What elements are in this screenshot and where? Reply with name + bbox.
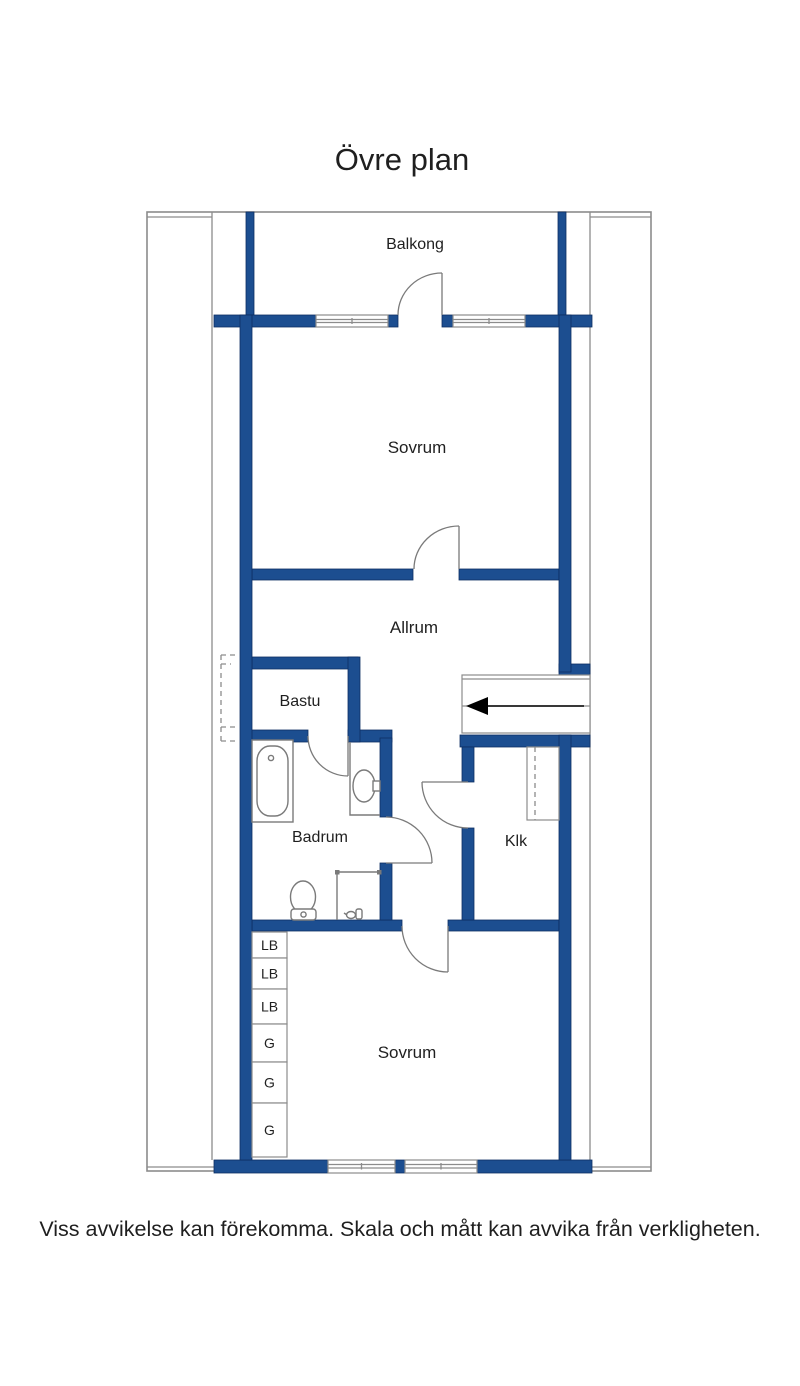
page-title: Övre plan bbox=[335, 142, 469, 177]
wall-segment bbox=[477, 1160, 592, 1173]
door-balcony bbox=[398, 273, 442, 315]
room-label-badrum: Badrum bbox=[292, 829, 348, 846]
closet-cell-label: LB bbox=[261, 999, 278, 1015]
wall-segment bbox=[214, 315, 316, 327]
wall-segment bbox=[448, 920, 559, 931]
room-label-sovrum-bottom: Sovrum bbox=[378, 1043, 437, 1062]
wall-segment bbox=[214, 1160, 328, 1173]
room-label-sovrum-top: Sovrum bbox=[388, 438, 447, 457]
wall-segment bbox=[462, 828, 474, 920]
door-sovrum-bottom bbox=[402, 926, 448, 972]
wall-segment bbox=[462, 747, 474, 782]
disclaimer-text: Viss avvikelse kan förekomma. Skala och … bbox=[39, 1217, 760, 1241]
wall-segment bbox=[252, 657, 358, 669]
staircase bbox=[462, 675, 590, 733]
room-label-allrum: Allrum bbox=[390, 618, 438, 637]
wall-segment bbox=[252, 920, 402, 931]
door-sovrum-top bbox=[414, 526, 459, 569]
balcony-post bbox=[246, 212, 254, 315]
window bbox=[453, 315, 525, 327]
wall-segment bbox=[380, 738, 392, 817]
door-badrum bbox=[386, 817, 432, 863]
room-labels: Sovrum Allrum Bastu Badrum Klk Sovrum bbox=[280, 438, 529, 1062]
door-klk bbox=[422, 782, 468, 828]
closet-cell-label: G bbox=[264, 1075, 275, 1091]
balcony-post bbox=[558, 212, 566, 315]
door-bastu bbox=[308, 736, 348, 776]
closet-cell-label: G bbox=[264, 1035, 275, 1051]
closet-cell-label: G bbox=[264, 1122, 275, 1138]
wall-segment bbox=[395, 1160, 405, 1173]
toilet-icon bbox=[291, 881, 317, 920]
shower-head-icon bbox=[344, 909, 362, 919]
room-label-bastu: Bastu bbox=[280, 693, 321, 710]
floor-plan-image: Övre plan Balkong bbox=[0, 0, 800, 1386]
window bbox=[405, 1160, 477, 1173]
washbasin-icon bbox=[350, 742, 380, 815]
bathtub-icon bbox=[252, 740, 293, 822]
room-label-klk: Klk bbox=[505, 833, 528, 850]
wardrobe-icon bbox=[527, 747, 559, 820]
room-label-balkong: Balkong bbox=[386, 236, 444, 253]
wall-segment bbox=[459, 569, 559, 580]
ceiling-height-dashed-line bbox=[221, 655, 237, 744]
wall-segment bbox=[252, 569, 413, 580]
balcony: Balkong bbox=[246, 212, 566, 315]
window bbox=[316, 315, 388, 327]
closet-cell-label: LB bbox=[261, 966, 278, 982]
wall-segment bbox=[380, 863, 392, 920]
wall-segment bbox=[442, 315, 453, 327]
window bbox=[328, 1160, 395, 1173]
wall-segment bbox=[240, 315, 252, 1160]
closet-cell-label: LB bbox=[261, 937, 278, 953]
closet-column: LB LB LB G G G bbox=[252, 932, 287, 1157]
wall-segment bbox=[525, 315, 592, 327]
wall-segment bbox=[388, 315, 398, 327]
wall-segment bbox=[348, 657, 360, 742]
wall-segment bbox=[559, 735, 571, 1160]
wall-segment bbox=[559, 315, 571, 672]
